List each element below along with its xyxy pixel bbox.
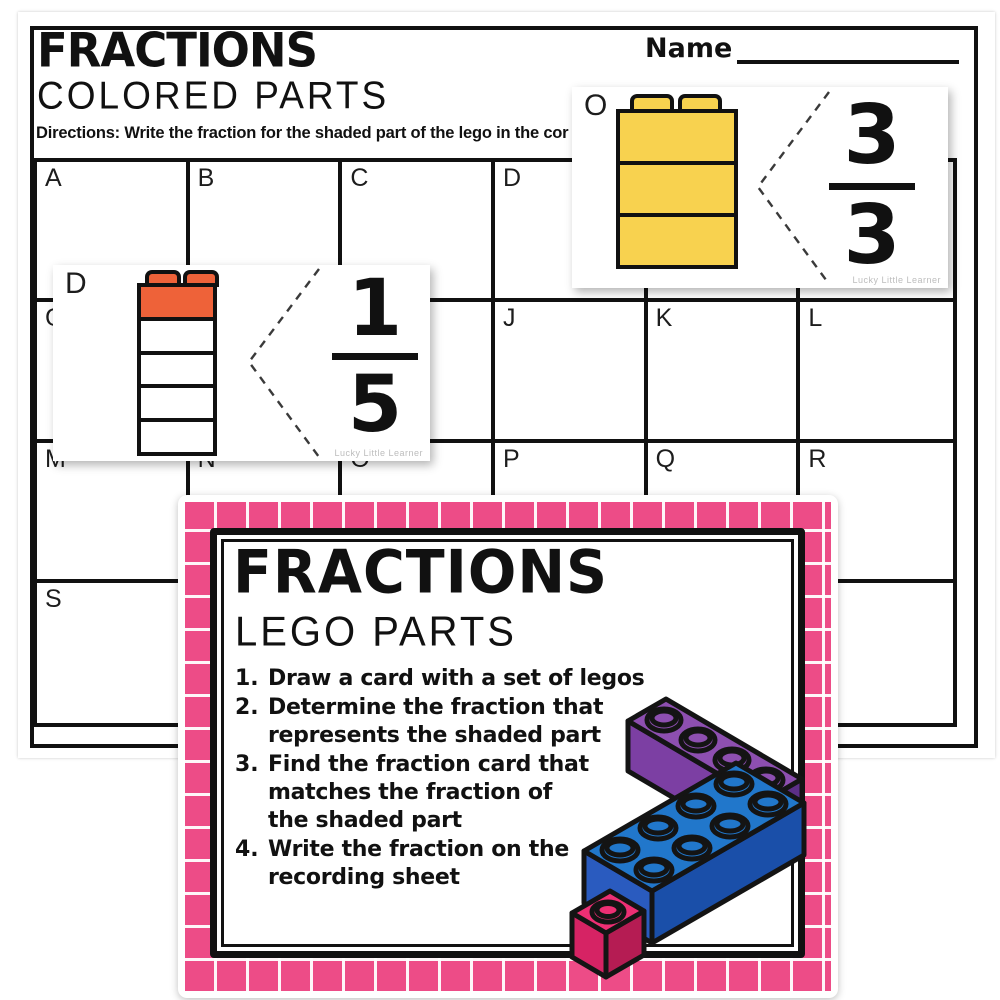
cell-letter: C (350, 164, 368, 193)
lego-body (616, 109, 738, 269)
grid-cell-s: S (37, 583, 190, 723)
item-line: the shaded part (268, 807, 589, 835)
lego-section (141, 384, 213, 418)
fraction-card-o: O 3 3 Lucky Little Learner (572, 87, 948, 288)
fraction-numerator: 3 (843, 89, 900, 183)
cell-letter: P (503, 445, 520, 474)
item-line: matches the fraction of (268, 779, 589, 807)
dashed-cut-line (241, 267, 323, 459)
item-number: 4. (235, 836, 268, 892)
card-letter: O (584, 89, 607, 123)
lego-section-shaded (620, 113, 734, 161)
cell-letter: Q (656, 445, 675, 474)
item-number: 3. (235, 751, 268, 835)
instruction-card: FRACTIONS LEGO PARTS 1. Draw a card with… (178, 495, 838, 998)
fraction-value: 3 3 (824, 89, 920, 282)
name-blank-line (737, 60, 959, 64)
instruction-title: FRACTIONS (233, 543, 608, 603)
worksheet-directions: Directions: Write the fraction for the s… (36, 124, 568, 143)
cell-letter: L (808, 304, 822, 333)
card-letter: D (65, 267, 87, 301)
item-line: recording sheet (268, 864, 569, 892)
grid-cell-j: J (495, 302, 648, 442)
cell-letter: B (198, 164, 215, 193)
lego-section-shaded (620, 161, 734, 213)
lego-section (141, 418, 213, 452)
cell-letter: J (503, 304, 516, 333)
worksheet-title: FRACTIONS (37, 27, 317, 74)
fraction-denominator: 5 (348, 360, 402, 450)
fraction-numerator: 1 (348, 265, 402, 353)
cell-letter: S (45, 585, 62, 614)
fraction-value: 1 5 (325, 265, 425, 450)
fraction-card-d: D 1 5 Lucky Little Learner (53, 265, 430, 461)
fraction-denominator: 3 (843, 190, 900, 282)
item-number: 1. (235, 665, 268, 693)
lego-section (141, 351, 213, 385)
lego-section (141, 317, 213, 351)
fraction-bar (332, 353, 418, 360)
grid-cell-k: K (648, 302, 801, 442)
item-line: Write the fraction on the (268, 836, 569, 864)
worksheet-subtitle: COLORED PARTS (37, 76, 389, 115)
cell-letter: A (45, 164, 62, 193)
name-label: Name (645, 33, 732, 64)
product-image: FRACTIONS COLORED PARTS Directions: Writ… (0, 0, 1000, 1000)
watermark-text: Lucky Little Learner (852, 275, 941, 285)
lego-section-shaded (141, 287, 213, 317)
dashed-cut-line (750, 90, 832, 286)
cell-letter: R (808, 445, 826, 474)
lego-bricks-illustration (566, 673, 856, 1000)
item-line: Determine the fraction that (268, 694, 603, 722)
cell-letter: D (503, 164, 521, 193)
item-line: represents the shaded part (268, 722, 603, 750)
lego-body (137, 283, 217, 456)
grid-cell-l: L (800, 302, 953, 442)
instruction-subtitle: LEGO PARTS (235, 611, 517, 653)
watermark-text: Lucky Little Learner (334, 448, 423, 458)
grid-cell-m: M (37, 443, 190, 583)
item-number: 2. (235, 694, 268, 750)
lego-section-shaded (620, 213, 734, 265)
cell-letter: K (656, 304, 673, 333)
item-line: Find the fraction card that (268, 751, 589, 779)
